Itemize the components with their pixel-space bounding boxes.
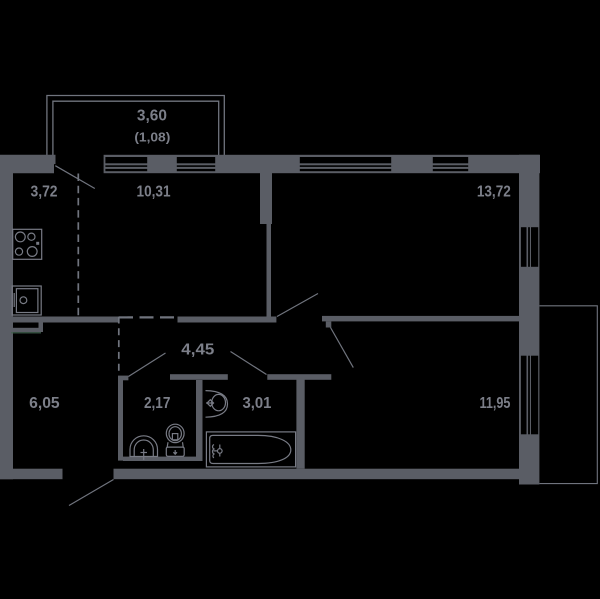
- svg-text:(1,08): (1,08): [134, 130, 170, 145]
- svg-text:2,17: 2,17: [144, 395, 170, 412]
- svg-text:10,31: 10,31: [137, 184, 171, 201]
- svg-text:3,01: 3,01: [242, 395, 271, 413]
- svg-text:11,95: 11,95: [480, 395, 511, 413]
- svg-text:3,60: 3,60: [137, 107, 167, 124]
- svg-text:6,05: 6,05: [29, 395, 60, 412]
- svg-text:13,72: 13,72: [477, 184, 511, 201]
- svg-text:4,45: 4,45: [181, 341, 214, 358]
- svg-text:3,72: 3,72: [30, 183, 57, 201]
